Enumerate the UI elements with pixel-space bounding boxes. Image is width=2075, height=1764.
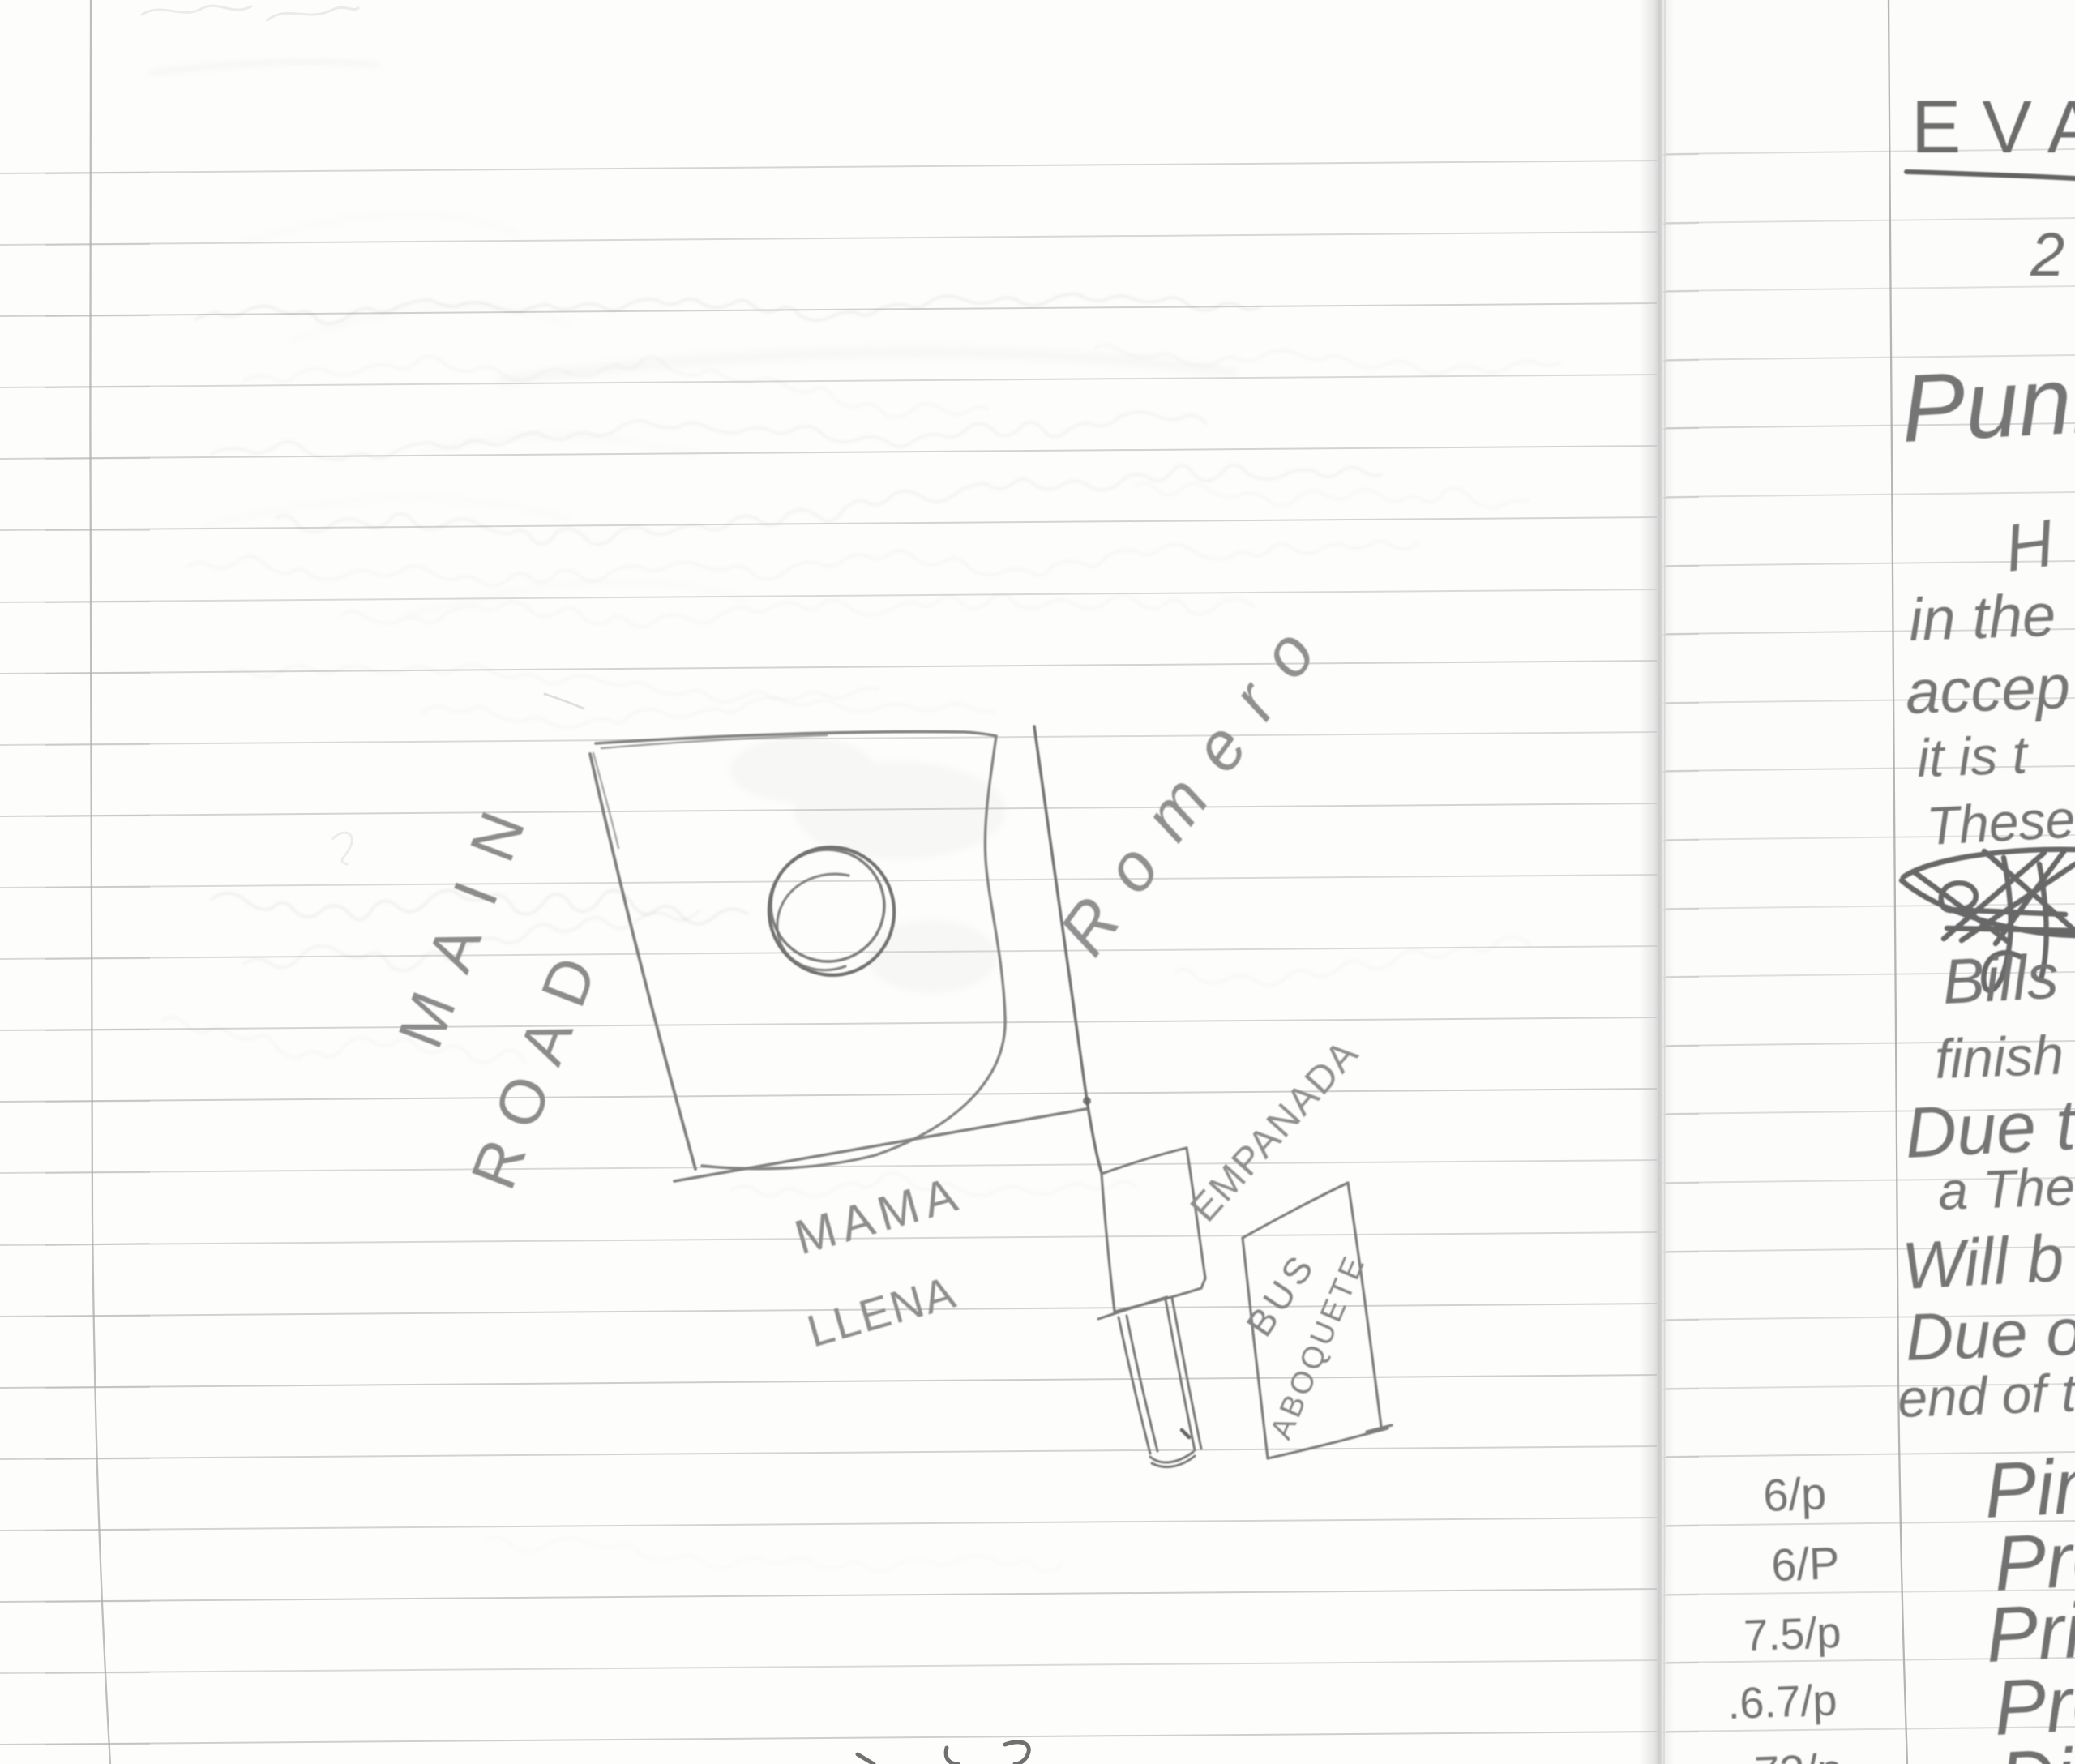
svg-text:Di: Di (1996, 1732, 2075, 1764)
svg-text:EVA: EVA (1911, 86, 2075, 169)
svg-text:it is t: it is t (1916, 724, 2030, 788)
svg-text:2: 2 (2030, 220, 2064, 289)
svg-text:7.5/p: 7.5/p (1743, 1608, 1842, 1660)
svg-text:Puni: Puni (1898, 346, 2075, 463)
svg-text:finish: finish (1934, 1024, 2064, 1090)
svg-text:accep: accep (1905, 653, 2072, 727)
svg-text:6/P: 6/P (1770, 1537, 1840, 1591)
svg-text:a The: a The (1937, 1156, 2075, 1221)
svg-text:Bills: Bills (1940, 940, 2060, 1017)
svg-text:end of t: end of t (1897, 1362, 2075, 1428)
svg-text:.6.7/p: .6.7/p (1726, 1676, 1838, 1728)
svg-text:6/p: 6/p (1762, 1467, 1827, 1521)
svg-text:in the: in the (1908, 581, 2057, 653)
svg-text:Will b: Will b (1900, 1222, 2065, 1304)
svg-text:73/p: 73/p (1753, 1744, 1843, 1764)
svg-text:These: These (1925, 788, 2075, 855)
